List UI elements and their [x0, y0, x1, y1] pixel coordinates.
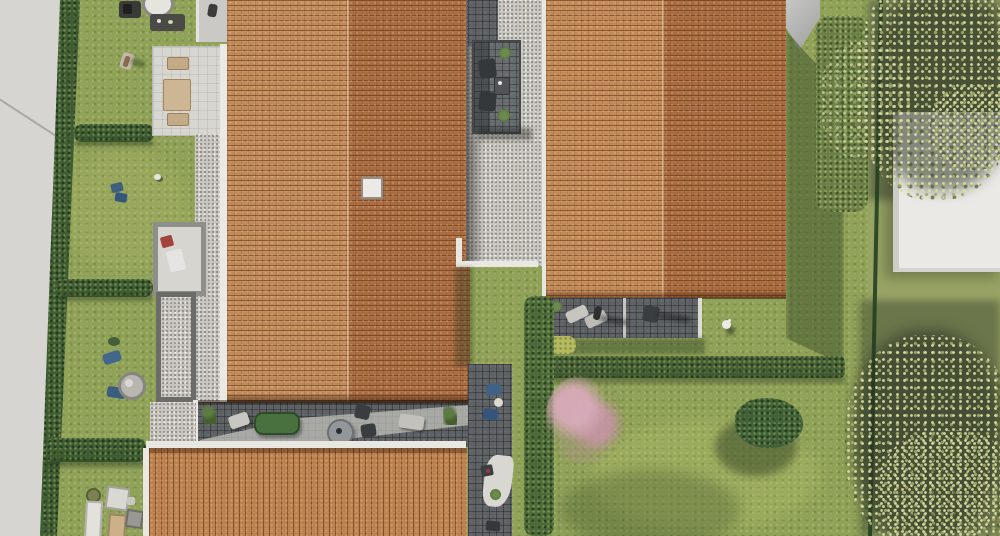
path-red-item	[486, 469, 490, 473]
storage-box-tan	[107, 513, 127, 536]
grass-shadow-below-corridor	[455, 267, 473, 367]
garden-bird	[154, 174, 161, 180]
corridor-plant-1	[499, 47, 511, 59]
tree-top-right-canopy-lobe	[930, 85, 1000, 170]
aerial-site-rendering	[0, 0, 1000, 536]
building-1-roof-east-slope	[348, 0, 470, 402]
garden-hedge-row-2-shadow	[56, 295, 153, 301]
tree-bottom-right-canopy-lobe	[878, 430, 1000, 536]
cube-chair-1	[478, 58, 497, 79]
picnic-bench-1	[167, 57, 189, 70]
picnic-table	[163, 79, 191, 111]
lower-terrace-eave-shadow	[196, 400, 470, 405]
terrace-plant-east	[443, 407, 457, 425]
path-table-white	[494, 398, 503, 407]
building-2-terrace-divider	[623, 298, 626, 338]
building-2-terrace-east-border	[698, 298, 702, 338]
corridor-plant-2	[498, 109, 510, 122]
terrace-plant-west	[202, 406, 216, 424]
bbq-grill-lid	[123, 4, 132, 14]
round-terrace-table-center	[336, 428, 342, 434]
path-plant	[490, 489, 501, 500]
garden-hedge-row-east	[545, 356, 845, 378]
round-garden-table	[118, 372, 146, 400]
building-3-north-eave	[146, 441, 466, 448]
building-1-skylight	[361, 177, 383, 199]
building-3-west-wall	[143, 448, 149, 536]
tree-top-right-canopy-west-lobe	[820, 40, 910, 160]
building-1-roof-ridge	[347, 0, 349, 402]
garden-hedge-row-1-shadow	[74, 140, 154, 146]
building-2-roof-ridge	[662, 0, 664, 298]
garden-shed	[84, 501, 103, 536]
corridor-table	[494, 77, 510, 95]
path-item-bottom	[486, 520, 501, 531]
building-2-roof-east-slope	[663, 0, 786, 298]
picnic-bench-2	[167, 113, 189, 126]
building-2-roof-west-slope	[546, 0, 663, 298]
table-item-2	[168, 20, 173, 24]
terrace-chair-2	[360, 423, 377, 438]
path-blue-chair-2	[482, 408, 498, 421]
terrace-chair-1	[354, 404, 372, 421]
corridor-table-item	[498, 81, 502, 85]
garden-hedge-row-3	[46, 438, 146, 462]
shrub-right	[735, 398, 803, 448]
pink-flowering-tree	[546, 376, 624, 464]
small-bush-mid	[108, 337, 120, 346]
corridor-terrace-shadow	[478, 128, 532, 140]
building-1-roof-west-slope	[227, 0, 348, 402]
building-3-eave-shadow	[149, 448, 467, 453]
blue-chair-2	[114, 192, 127, 203]
corridor-terrace-dark-column	[474, 42, 490, 132]
gravel-patio	[156, 292, 196, 402]
storage-box-gray	[125, 509, 144, 529]
garden-swan-ornament	[722, 320, 731, 329]
table-item-1	[157, 19, 161, 23]
building-3-roof	[149, 448, 467, 536]
garden-chair-small	[127, 497, 135, 505]
round-garden-table-top	[125, 379, 133, 387]
garden-hedge-row-3-shadow	[46, 460, 146, 467]
green-sofa	[254, 412, 300, 435]
